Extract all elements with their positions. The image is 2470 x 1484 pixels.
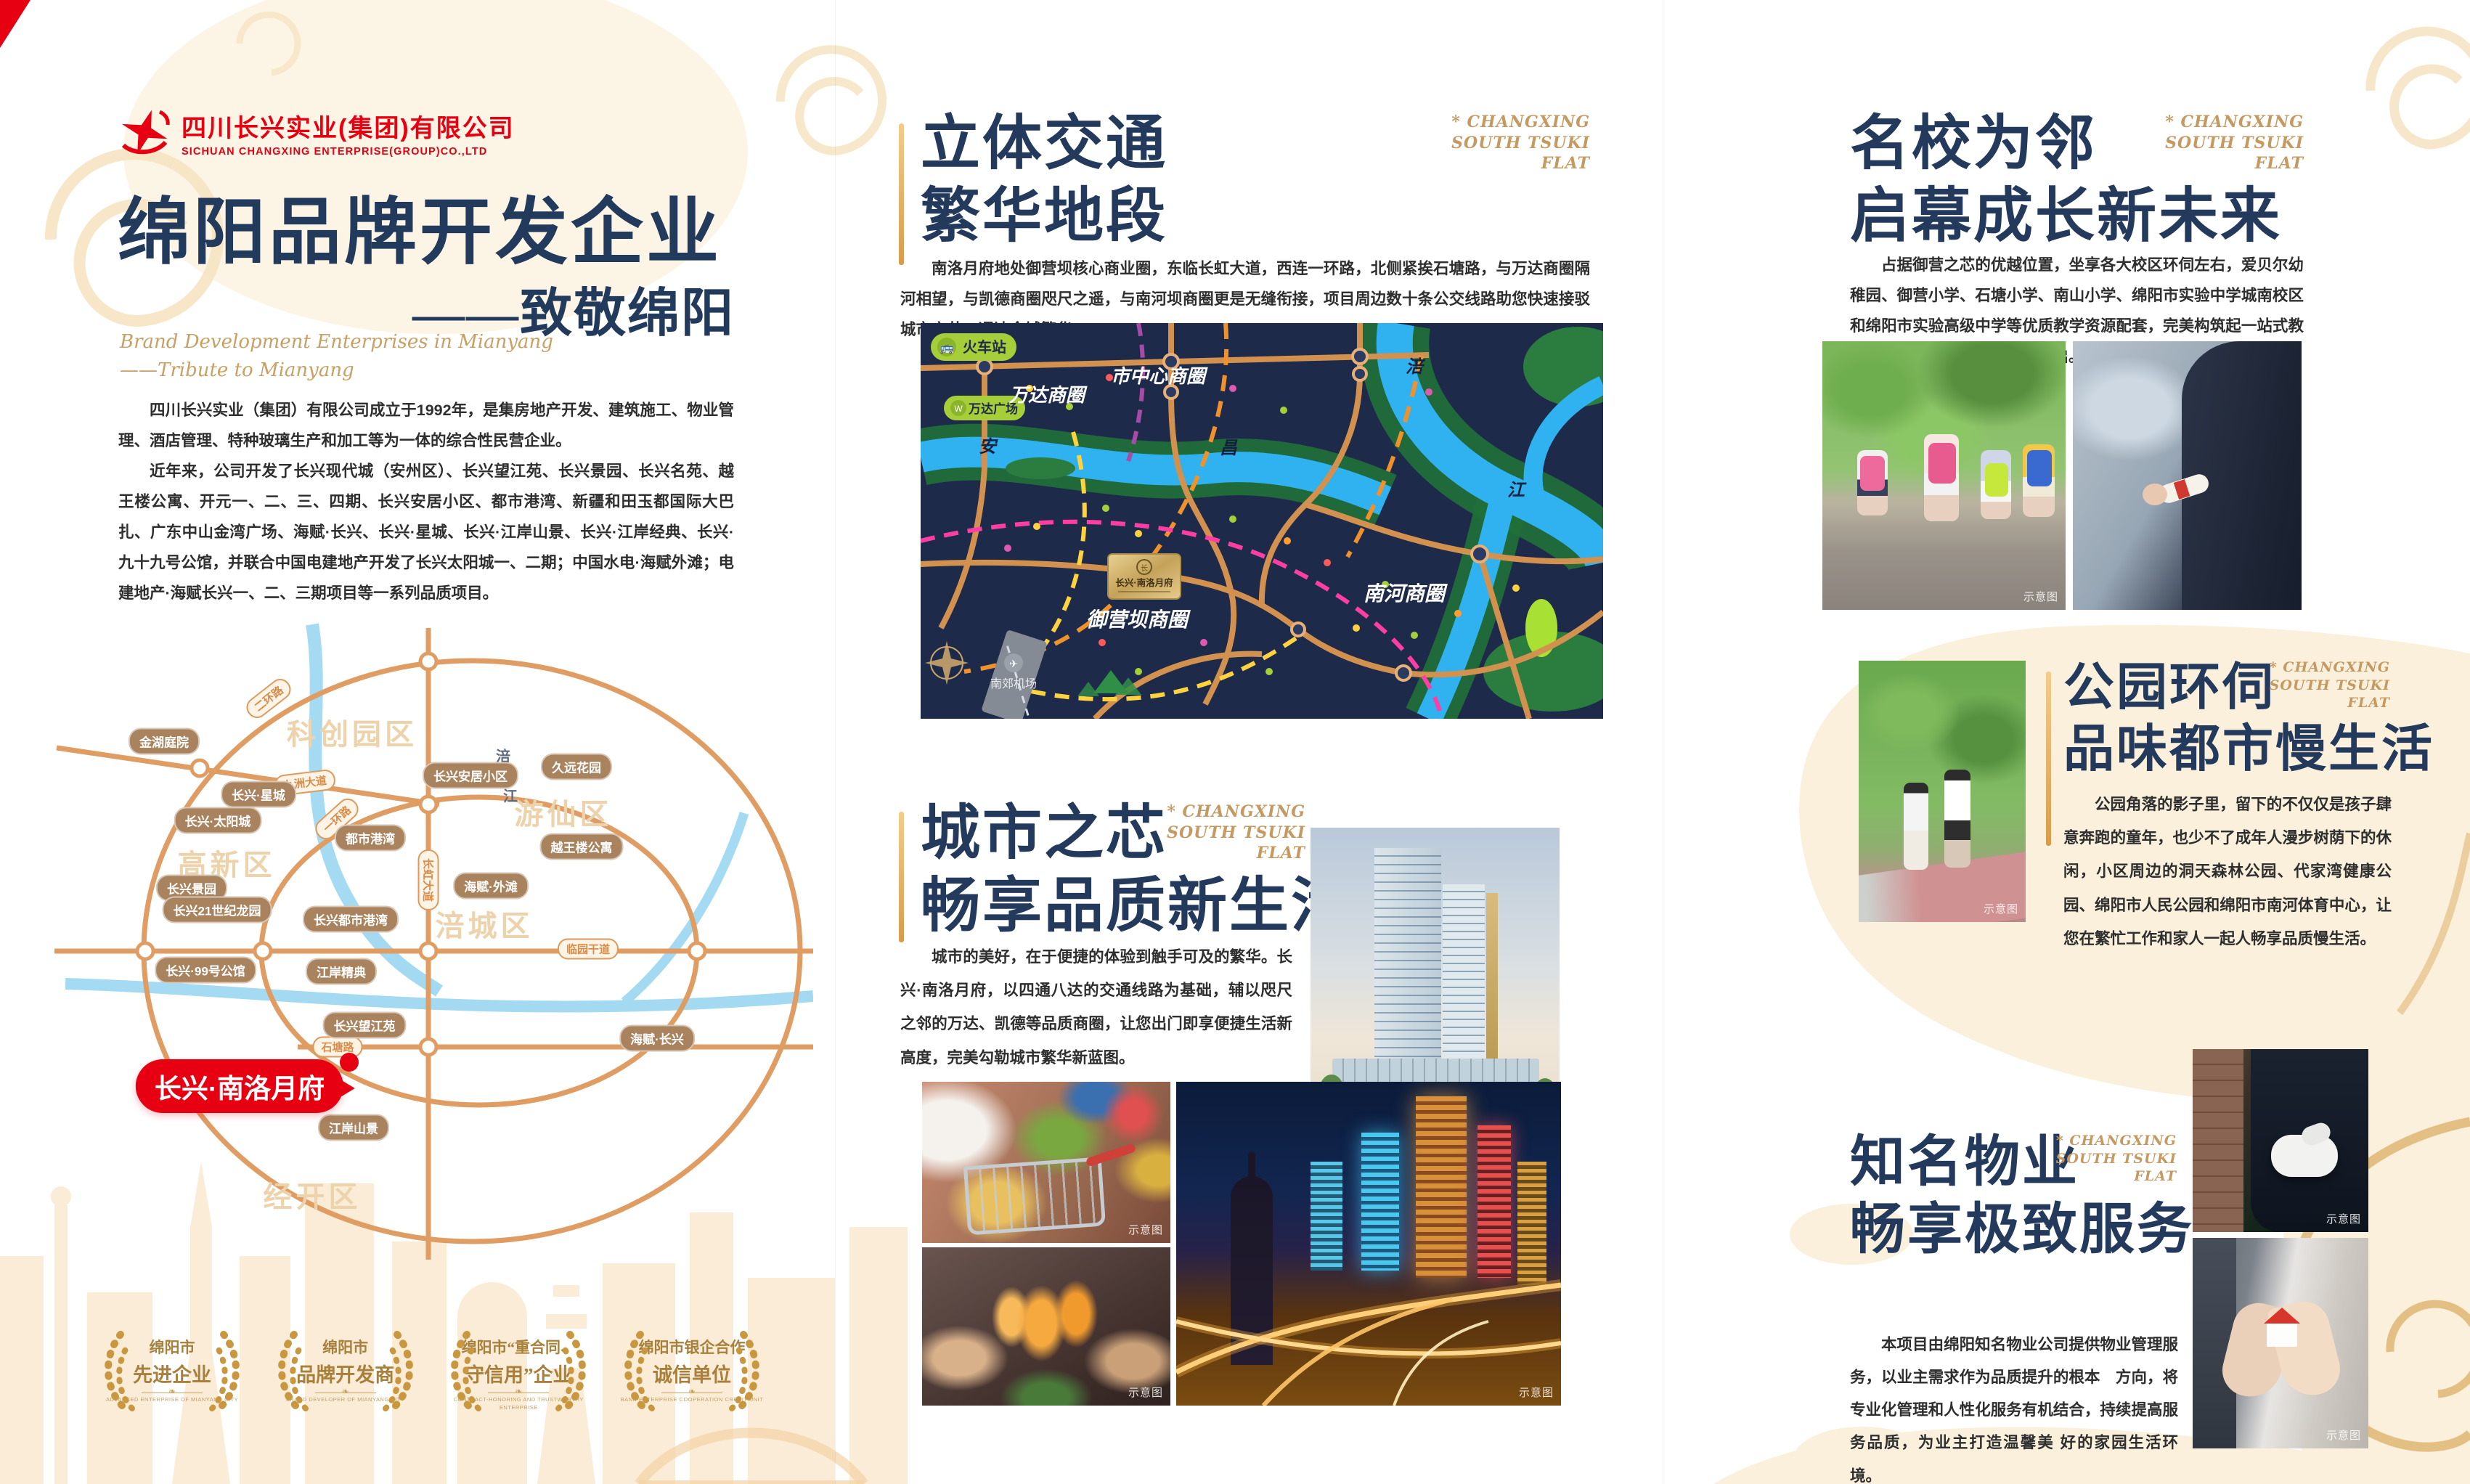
cart-frame <box>963 1157 1106 1235</box>
tag-line3: FLAT <box>2270 694 2390 712</box>
backpack-blue <box>2027 450 2052 486</box>
project-jingdian: 江岸精典 <box>306 958 377 985</box>
photo-city-night: 示意图 <box>1176 1082 1561 1406</box>
center-cbd-label: 市中心商圈 <box>1111 365 1208 387</box>
badge-divider <box>661 1393 722 1393</box>
tag-line3: FLAT <box>2165 153 2304 174</box>
right-s3-title-line2: 畅享极致服务 <box>1850 1196 2177 1264</box>
tag-line1: * CHANGXING <box>2165 112 2304 133</box>
watermark: 示意图 <box>2326 1427 2361 1443</box>
nanhe-cbd-label: 南河商圈 <box>1364 582 1448 605</box>
jogger-figure <box>1904 783 1928 870</box>
mid-s2-title-line2: 畅享品质新生活 <box>921 870 1298 942</box>
script-line-2: ——Tribute to Mianyang <box>120 356 553 385</box>
badge-divider <box>488 1393 549 1393</box>
laurel-icon <box>268 1324 423 1411</box>
laurel-icon <box>441 1324 596 1411</box>
district-kechuang: 科创园区 <box>287 711 417 753</box>
project-taiyangcheng: 长兴·太阳城 <box>174 807 262 834</box>
project-dushigangwan: 都市港湾 <box>335 825 406 852</box>
script-line-1: Brand Development Enterprises in Mianyan… <box>120 328 553 356</box>
project-xingcheng: 长兴·星城 <box>221 781 296 808</box>
plaque-emblem-icon: 长 <box>1141 564 1148 573</box>
cart-handle <box>1085 1143 1136 1167</box>
watermark: 示意图 <box>1128 1385 1163 1400</box>
airport-label: 南郊机场 <box>990 677 1037 690</box>
watermark: 示意图 <box>2023 589 2058 604</box>
river-fu-label: 涪 <box>1406 357 1426 377</box>
right-s1-tag: * CHANGXING SOUTH TSUKI FLAT <box>2165 112 2304 174</box>
right-s2-para-text: 公园角落的影子里，留下的不仅仅是孩子肆意奔跑的童年，也少不了成年人漫步树荫下的休… <box>2063 788 2392 955</box>
jogger-figure <box>1944 770 1970 868</box>
project-plaque: 长 长兴·南洛月府 <box>1108 554 1181 599</box>
section-bar <box>899 123 904 265</box>
tag-line3: FLAT <box>1451 153 1590 174</box>
right-s1-title-line2: 启幕成长新未来 <box>1850 180 2304 253</box>
right-s2-title-line2: 品味都市慢生活 <box>2063 719 2390 780</box>
backpack-pink2 <box>1928 443 1956 484</box>
section-bar <box>2046 672 2051 846</box>
project-anju: 长兴安居小区 <box>423 762 518 789</box>
tag-line2: SOUTH TSUKI <box>2056 1150 2177 1168</box>
plane-icon: ✈ <box>1009 658 1018 669</box>
mid-s1-header: 立体交通 繁华地段 * CHANGXING SOUTH TSUKI FLAT <box>921 107 1590 253</box>
city-map: 🚌 火车站 W 万达广场 万达商圈 市中心商圈 南河商圈 御营坝商圈 安 昌 涪… <box>921 323 1603 719</box>
tag-line2: SOUTH TSUKI <box>2270 677 2390 695</box>
right-s3-para-text: 本项目由绵阳知名物业公司提供物业管理服务，以业主需求作为品质提升的根本 方向，将… <box>1850 1329 2178 1484</box>
photo-butler-gloves: 示意图 <box>2193 1049 2368 1232</box>
tag-line3: FLAT <box>2056 1167 2177 1186</box>
location-diagram-canvas <box>44 617 813 1271</box>
right-s1-header: 名校为邻 启幕成长新未来 * CHANGXING SOUTH TSUKI FLA… <box>1850 107 2304 253</box>
tag-line2: SOUTH TSUKI <box>1167 823 1305 844</box>
mid-s2-para: 城市的美好，在于便捷的体验到触手可及的繁华。长兴·南洛月府，以四通八达的交通线路… <box>900 940 1292 1075</box>
project-jiangan-shanjing: 江岸山景 <box>318 1114 389 1141</box>
laurel-icon <box>94 1324 250 1411</box>
fold-line-1 <box>835 0 836 1484</box>
project-yuewanglou: 越王楼公寓 <box>540 833 624 860</box>
award-badge-2: 绵阳市 品牌开发商 BRAND DEVELOPER OF MIANYANG CI… <box>268 1329 423 1411</box>
wanda-icon: W <box>954 404 963 414</box>
mid-s2-tag: * CHANGXING SOUTH TSUKI FLAT <box>1167 802 1305 864</box>
award-badge-4: 绵阳市银企合作 诚信单位 BANK-ENTERPRISE COOPERATION… <box>614 1329 770 1411</box>
right-s3-tag: * CHANGXING SOUTH TSUKI FLAT <box>2056 1132 2177 1186</box>
project-jinhu: 金湖庭院 <box>129 728 200 755</box>
train-station-pill: 🚌 火车站 <box>931 333 1016 361</box>
river-an-label: 安 <box>979 437 998 457</box>
tag-line1: * CHANGXING <box>1451 112 1590 133</box>
photo-toast: 示意图 <box>922 1247 1170 1406</box>
corner-red-accent <box>0 0 33 51</box>
company-name-cn: 四川长兴实业(集团)有限公司 <box>182 108 515 144</box>
brochure-page: 四川长兴实业(集团)有限公司 SICHUAN CHANGXING ENTERPR… <box>0 0 2470 1484</box>
project-location-dot <box>340 1053 359 1072</box>
backpack-lime <box>1985 463 2008 497</box>
plaque-label: 长兴·南洛月府 <box>1115 577 1173 588</box>
wanda-cbd-label: 万达商圈 <box>1008 384 1088 406</box>
right-s2-para: 公园角落的影子里，留下的不仅仅是孩子肆意奔跑的童年，也少不了成年人漫步树荫下的休… <box>2063 788 2392 955</box>
left-para-1: 四川长兴实业（集团）有限公司成立于1992年，是集房地产开发、建筑施工、物业管理… <box>118 396 734 457</box>
project-haifu-changxing: 海赋·长兴 <box>619 1025 695 1052</box>
award-badges-row: 绵阳市 先进企业 ADVANCED ENTERPRISE OF MIANYANG… <box>94 1329 770 1411</box>
project-highlight-callout: 长兴·南洛月府 <box>136 1059 343 1113</box>
right-s3-para: 本项目由绵阳知名物业公司提供物业管理服务，以业主需求作为品质提升的根本 方向，将… <box>1850 1329 2178 1484</box>
photo-graduation <box>2073 341 2302 610</box>
yuying-cbd-label: 御营坝商圈 <box>1086 608 1191 631</box>
mid-s1-title-line2: 繁华地段 <box>921 180 1590 253</box>
right-s2-header: 公园环伺 品味都市慢生活 * CHANGXING SOUTH TSUKI FLA… <box>2063 657 2390 781</box>
photo-supermarket: 示意图 <box>922 1082 1170 1243</box>
project-cx-dushigangwan: 长兴都市港湾 <box>303 906 399 933</box>
river-chang-label: 昌 <box>1220 439 1238 458</box>
logo-text-block: 四川长兴实业(集团)有限公司 SICHUAN CHANGXING ENTERPR… <box>182 108 515 158</box>
badge-divider <box>315 1393 376 1393</box>
river-jiang-label: 江 <box>1507 481 1527 500</box>
district-youxian: 游仙区 <box>515 791 613 833</box>
left-para-2: 近年来，公司开发了长兴现代城（安州区）、长兴望江苑、长兴景园、长兴名苑、越王楼公… <box>118 457 734 609</box>
location-diagram: 科创园区 游仙区 高新区 涪城区 经开区 二环路 九洲大道 一环路 长虹大道 石… <box>44 617 813 1271</box>
district-fucheng: 涪城区 <box>436 902 534 945</box>
brick-wall <box>2193 1049 2243 1232</box>
company-name-en: SICHUAN CHANGXING ENTERPRISE(GROUP)CO.,L… <box>182 146 515 158</box>
laurel-icon <box>614 1324 770 1411</box>
night-tower <box>1477 1125 1511 1278</box>
project-99mansion: 长兴·99号公馆 <box>155 957 256 984</box>
photo-children-school: 示意图 <box>1822 341 2066 610</box>
night-tower <box>1416 1096 1467 1278</box>
right-s3-header: 知名物业 畅享极致服务 * CHANGXING SOUTH TSUKI FLAT <box>1850 1129 2177 1263</box>
photo-joggers-park: 示意图 <box>1859 661 2026 922</box>
left-script-en: Brand Development Enterprises in Mianyan… <box>120 328 553 385</box>
mid-s2-header: 城市之芯 畅享品质新生活 * CHANGXING SOUTH TSUKI FLA… <box>921 797 1298 942</box>
mid-s2-para-text: 城市的美好，在于便捷的体验到触手可及的繁华。长兴·南洛月府，以四通八达的交通线路… <box>900 940 1292 1075</box>
house-model-body <box>2267 1322 2297 1347</box>
tag-line2: SOUTH TSUKI <box>2165 133 2304 154</box>
tag-line2: SOUTH TSUKI <box>1451 133 1590 154</box>
section-bar <box>899 812 904 942</box>
graduate-hand <box>2143 484 2167 505</box>
award-badge-3: 绵阳市“重合同、 守信用”企业 CONTRACT-HONORING AND TR… <box>441 1329 596 1411</box>
photo-heart-hands-house: 示意图 <box>2193 1238 2368 1448</box>
road-linyuan: 临园干道 <box>558 939 619 960</box>
watermark: 示意图 <box>1128 1222 1163 1237</box>
award-badge-1: 绵阳市 先进企业 ADVANCED ENTERPRISE OF MIANYANG… <box>94 1329 250 1411</box>
pagoda-spire <box>1248 1151 1255 1181</box>
mid-s1-tag: * CHANGXING SOUTH TSUKI FLAT <box>1451 112 1590 174</box>
left-main-title: 绵阳品牌开发企业 <box>118 173 722 278</box>
house-model-roof <box>2264 1308 2300 1324</box>
fold-line-2 <box>1663 0 1663 1484</box>
district-jingkai: 经开区 <box>264 1173 362 1215</box>
watermark: 示意图 <box>1519 1385 1554 1400</box>
badge-divider <box>142 1393 203 1393</box>
tag-line3: FLAT <box>1167 843 1305 864</box>
night-tower <box>1361 1133 1399 1271</box>
watermark: 示意图 <box>1984 901 2018 916</box>
logo-star-icon <box>118 107 171 158</box>
train-station-label: 火车站 <box>963 338 1006 356</box>
project-jiuyuan: 久远花园 <box>541 754 612 780</box>
company-logo: 四川长兴实业(集团)有限公司 SICHUAN CHANGXING ENTERPR… <box>118 107 515 158</box>
night-tower <box>1311 1162 1342 1271</box>
watermark: 示意图 <box>2326 1211 2361 1226</box>
tag-line1: * CHANGXING <box>2270 659 2390 677</box>
backpack-pink <box>1860 456 1885 491</box>
tower-main <box>1374 848 1441 1080</box>
tag-line1: * CHANGXING <box>2056 1132 2177 1150</box>
tower-sign <box>1486 893 1498 1067</box>
left-intro-paragraphs: 四川长兴实业（集团）有限公司成立于1992年，是集房地产开发、建筑施工、物业管理… <box>118 396 734 608</box>
project-haifu-waitan: 海赋·外滩 <box>453 873 529 900</box>
train-icon: 🚌 <box>940 342 954 354</box>
tag-line1: * CHANGXING <box>1167 802 1305 823</box>
road-changhong: 长虹大道 <box>418 849 439 910</box>
tower-side <box>1443 884 1485 1082</box>
project-21century: 长兴21世纪龙园 <box>163 897 272 924</box>
project-wangjiangyuan: 长兴望江苑 <box>323 1012 407 1039</box>
right-s2-tag: * CHANGXING SOUTH TSUKI FLAT <box>2270 659 2390 712</box>
highway-lights <box>1176 1256 1561 1406</box>
